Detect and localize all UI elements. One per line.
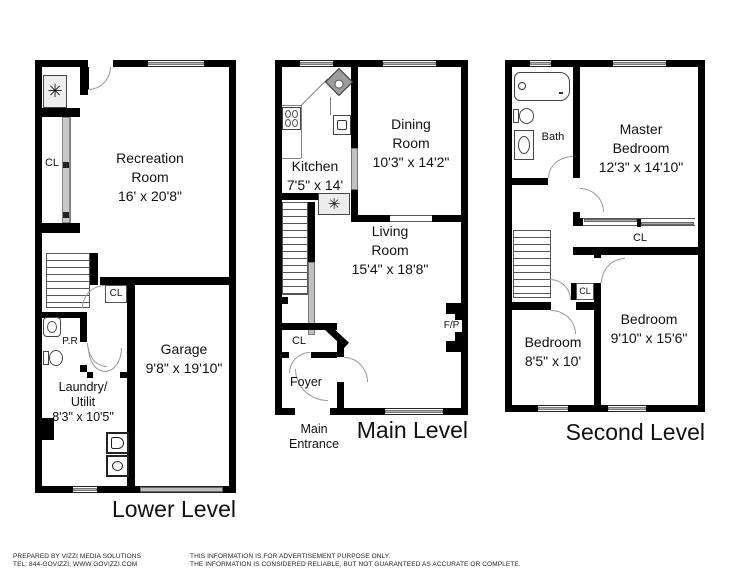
room-name: Bedroom (603, 310, 695, 329)
room-name: Kitchen (282, 157, 348, 176)
toilet-bowl-icon (49, 350, 63, 366)
window (530, 60, 551, 67)
wall (573, 247, 698, 255)
main-level-plan: ✳ Kitchen 7'5" x 14' Dining Room 10'3" x… (275, 60, 468, 415)
wall (120, 372, 135, 378)
room-name: Dining Room (384, 115, 439, 153)
washer-drum-glyph (112, 461, 123, 471)
room-name: Recreation Room (110, 149, 190, 187)
footer-credits: PREPARED BY VIZZI MEDIA SOLUTIONS TEL: 8… (13, 553, 141, 569)
room-dims: 16' x 20'8" (100, 187, 200, 206)
wall (42, 223, 80, 233)
stove-icon (282, 107, 301, 130)
slider-divider (637, 219, 641, 227)
wall (311, 352, 337, 358)
footer-disclaimer-line1: THIS INFORMATION IS FOR ADVERTISEMENT PU… (190, 553, 521, 561)
room-label-living: Living Room 15'4" x 18'8" (340, 222, 440, 279)
tub-drain (559, 92, 563, 94)
sink-basin (333, 78, 346, 91)
entry-door-opening (88, 60, 113, 67)
window (538, 405, 568, 412)
lower-level-plan: ✳ CL Recreation Room 16' x 20'8" CL P.R … (35, 60, 236, 493)
window-sill (148, 62, 204, 65)
door-arc (105, 348, 122, 372)
toilet-bowl-icon (519, 108, 534, 124)
room-dims: 12'3" x 14'10" (593, 158, 689, 177)
room-label-garage: Garage 9'8" x 19'10" (138, 340, 230, 378)
slider-panel (641, 222, 694, 225)
room-label-kitchen: Kitchen 7'5" x 14' (282, 157, 348, 195)
cased-opening (390, 215, 432, 222)
wall (80, 365, 87, 372)
room-name: Living Room (363, 222, 418, 260)
second-level-title: Second Level (505, 419, 705, 446)
garage-door-panel (140, 487, 223, 492)
room-dims: 15'4" x 18'8" (340, 260, 440, 279)
washer-icon (106, 455, 129, 477)
window (148, 60, 204, 67)
main-entrance-label: Main Entrance (283, 422, 345, 452)
window (608, 405, 646, 412)
door-arc (550, 279, 571, 300)
wall (337, 340, 344, 357)
appliance-symbol: ✳ (47, 81, 62, 102)
floorplan-page: { "symbols": {"appliance": "✳"}, "floors… (0, 0, 744, 575)
vanity-sink-icon (514, 130, 534, 160)
refrigerator-glyph (337, 120, 347, 130)
room-label-recreation: Recreation Room 16' x 20'8" (100, 149, 200, 206)
window-sill (383, 62, 436, 65)
room-label-bedroom-mid: Bedroom 9'10" x 15'6" (603, 310, 695, 348)
wall (80, 67, 88, 95)
wall (90, 253, 98, 285)
window-sill (538, 407, 568, 410)
bath-label: Bath (536, 131, 570, 144)
door-arc (551, 310, 576, 334)
counter-edge (301, 78, 329, 106)
room-name: Garage (138, 340, 230, 359)
burner-icon (292, 119, 298, 127)
wall (432, 215, 461, 222)
burner-icon (292, 110, 298, 118)
garage-door (140, 486, 223, 493)
window-sill (385, 410, 443, 413)
window-sill (73, 488, 97, 491)
boiler-box: ✳ (43, 75, 67, 108)
corner-sink-icon (325, 68, 353, 96)
stair-wall (308, 202, 315, 262)
dryer-icon (106, 432, 129, 454)
footer-contact: TEL: 844-GOVIZZI, WWW.GOVIZZI.COM (13, 561, 141, 569)
door-arc (601, 258, 625, 283)
wall (573, 67, 580, 178)
door-arc (548, 156, 573, 178)
door-arc (344, 357, 368, 382)
footer-disclaimer-line2: THE INFORMATION IS CONSIDERED RELIABLE, … (190, 561, 521, 569)
footer-disclaimer: THIS INFORMATION IS FOR ADVERTISEMENT PU… (190, 553, 521, 569)
window (613, 60, 666, 67)
closet-rod (62, 117, 70, 223)
window (383, 60, 436, 67)
room-dims: 8'5" x 10' (513, 352, 593, 371)
sink-icon (43, 317, 61, 337)
room-name: Bedroom (513, 333, 593, 352)
wall (42, 108, 80, 117)
refrigerator-icon (333, 115, 351, 135)
room-dims: 8'3" x 10'5" (43, 410, 123, 425)
window-sill (530, 62, 551, 65)
burner-icon (285, 119, 291, 127)
wall (100, 277, 229, 285)
door-arc (88, 348, 105, 372)
wall-pier (275, 297, 288, 304)
wall (512, 178, 548, 185)
bathtub-icon (514, 72, 570, 101)
staircase (513, 230, 551, 298)
counter-edge (330, 97, 331, 115)
window (300, 60, 333, 67)
wall (576, 302, 601, 310)
burner-icon (285, 110, 291, 118)
slider-panel (584, 219, 637, 222)
room-label-bedroom-small: Bedroom 8'5" x 10' (513, 333, 593, 371)
sink-basin (518, 136, 530, 154)
window (385, 408, 443, 415)
lower-level-title: Lower Level (36, 496, 236, 523)
window (73, 486, 97, 493)
dishwasher-box: ✳ (318, 193, 350, 215)
window-sill (608, 407, 646, 410)
foyer-label: Foyer (282, 375, 330, 390)
wall (358, 215, 390, 222)
fireplace-label: F/P (441, 320, 462, 332)
door-arc (580, 188, 604, 212)
main-entrance-opening (295, 408, 330, 415)
counter-edge (282, 105, 301, 106)
stove-burners (283, 108, 300, 129)
appliance-symbol: ✳ (328, 195, 341, 213)
dryer-door-glyph (111, 437, 124, 449)
wall (594, 255, 601, 258)
wall (351, 193, 358, 222)
wall (505, 302, 551, 310)
closet-label: CL (42, 157, 62, 170)
closet-label: CL (627, 232, 653, 245)
room-dims: 9'10" x 15'6" (603, 329, 695, 348)
window-sill (300, 62, 333, 65)
room-dims: 9'8" x 19'10" (138, 359, 230, 378)
closet-label: CL (105, 288, 127, 300)
footer-prepared-by: PREPARED BY VIZZI MEDIA SOLUTIONS (13, 553, 141, 561)
closet-front-line (70, 117, 71, 223)
room-dims: 10'3" x 14'2" (365, 153, 457, 172)
room-label-master: Master Bedroom 12'3" x 14'10" (593, 120, 689, 177)
pass-through (351, 148, 358, 190)
closet-label: CL (576, 286, 594, 297)
sink-basin (47, 321, 57, 333)
second-level-plan: Bath Master Bedroom 12'3" x 14'10" CL CL… (505, 60, 705, 412)
room-name: Master Bedroom (610, 120, 672, 158)
tub-faucet (518, 82, 526, 90)
room-label-laundry: Laundry/ Utilit 8'3" x 10'5" (43, 380, 123, 425)
room-name: Laundry/ Utilit (53, 380, 113, 410)
room-label-dining: Dining Room 10'3" x 14'2" (365, 115, 457, 172)
wall (87, 372, 93, 378)
staircase (282, 202, 308, 295)
door-arc (88, 67, 111, 90)
sliding-closet-door (583, 218, 695, 226)
powder-room-label: P.R (58, 336, 82, 348)
wall (282, 352, 289, 358)
closet-label: CL (286, 335, 312, 348)
wall (337, 382, 344, 408)
counter-edge (301, 105, 302, 158)
window-sill (613, 62, 666, 65)
room-dims: 7'5" x 14' (282, 176, 348, 195)
wall (573, 218, 583, 226)
